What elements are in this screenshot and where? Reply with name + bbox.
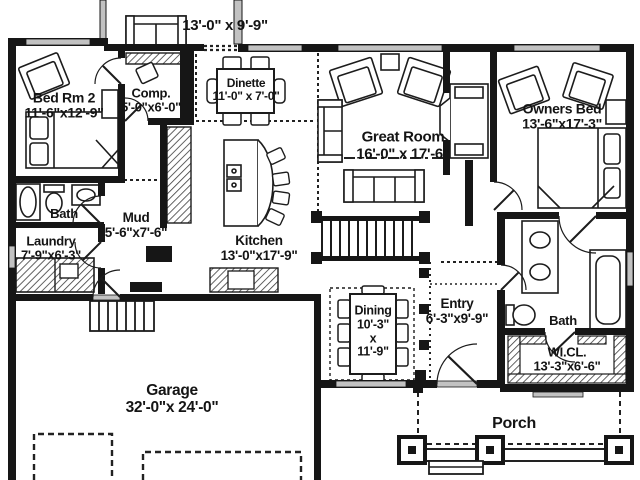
stairs-railing <box>311 211 430 264</box>
bedroom2-chair <box>18 52 70 99</box>
bedroom2-bed <box>26 112 118 168</box>
great-room-loveseat <box>318 100 342 162</box>
bedroom2-dresser <box>102 90 118 118</box>
porch-columns <box>399 383 632 463</box>
bathroom-sink <box>72 185 100 205</box>
colonnade-posts <box>415 268 429 381</box>
floor-plan-drawing <box>0 0 640 480</box>
owners-tub <box>590 250 626 330</box>
great-room-chairs <box>329 54 451 107</box>
closet-door <box>545 332 575 362</box>
porch-outline <box>399 392 632 461</box>
owners-toilet <box>506 305 535 325</box>
garage-car-outlines <box>34 434 301 480</box>
toilet <box>44 185 64 213</box>
bedroom2-door <box>95 58 121 84</box>
basement-stairs <box>90 301 154 331</box>
mud-lockers <box>130 246 172 292</box>
porch-steps <box>429 461 483 474</box>
bathtub <box>16 184 40 220</box>
kitchen-island <box>224 140 273 226</box>
owners-bed-door <box>494 182 522 210</box>
deck-sofa <box>126 16 186 45</box>
great-room-sofa <box>344 170 424 202</box>
washer-dryer <box>16 258 94 292</box>
computer-desk <box>126 53 182 64</box>
front-door <box>437 344 477 384</box>
owners-bed-furniture <box>538 100 626 208</box>
comp-door <box>125 98 148 121</box>
desk-chair <box>135 62 158 84</box>
garage-entry-door <box>93 270 120 297</box>
closet-shelves <box>508 336 626 383</box>
vanity-double-sink <box>522 221 558 293</box>
owners-bath-door <box>559 216 596 253</box>
dinette-table <box>217 69 274 113</box>
dining-set <box>330 286 414 382</box>
floor-plan: 13'-0" x 9'-9" Bed Rm 2 11'-6"x12'-9" Co… <box>0 0 640 480</box>
owners-chairs <box>498 62 613 114</box>
